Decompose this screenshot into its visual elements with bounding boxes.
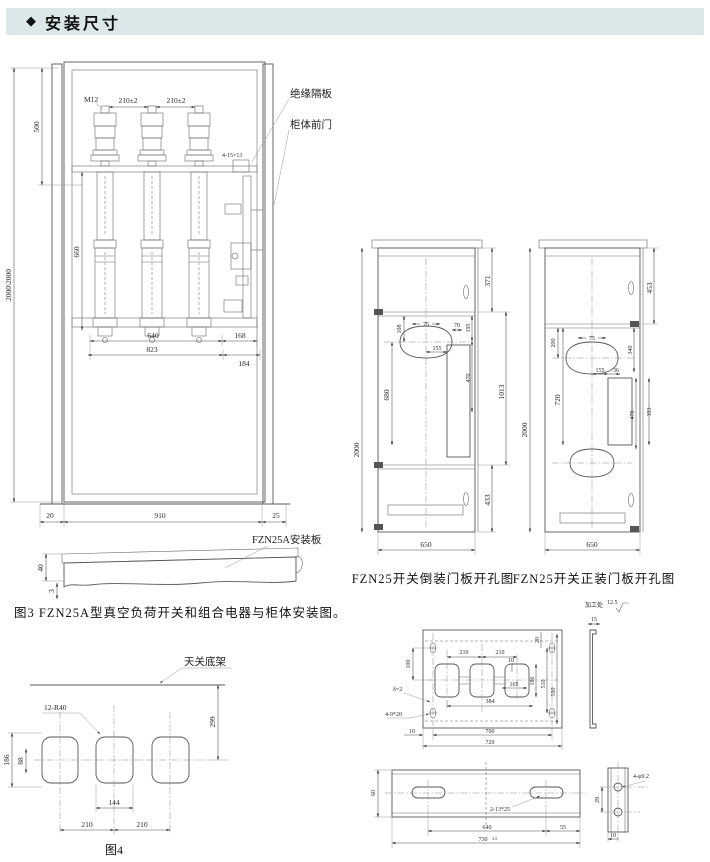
pi-dim-108: 108	[397, 325, 403, 334]
hole-plate-drawing: 100 210 210 10 165 186 384 510 590 20 δ=…	[385, 600, 629, 750]
pi-dim-2000: 2000	[352, 442, 361, 457]
panel-inverted-caption: FZN25开关倒装门板开孔图	[352, 571, 515, 586]
dim-168: 168	[234, 331, 246, 340]
pn-dim-155: 155	[596, 368, 605, 374]
pn-dim-36: 36	[613, 368, 619, 374]
pi-dim-470: 470	[466, 374, 472, 383]
bar-dim-55: 55	[560, 825, 566, 831]
panel-normal-caption: FZN25开关正装门板开孔图	[513, 571, 676, 586]
bar-dim-730-tol: ±1	[492, 837, 498, 842]
hp-dim-590: 590	[551, 688, 557, 697]
pi-dim-75: 75	[423, 322, 429, 328]
dim-640: 640	[147, 331, 159, 340]
hp-slot-note: 4-9*20	[385, 712, 402, 718]
pi-dim-650: 650	[420, 540, 432, 549]
corner-fasteners	[429, 643, 556, 718]
label-base-frame: 天关底架	[184, 655, 226, 668]
hp-dim-165: 165	[510, 682, 519, 688]
bar-dim-10: 10	[610, 833, 616, 839]
panel-inverted-drawing: 2000 371 1013 433 75 108 155 70 195 680	[352, 240, 515, 586]
surface-finish-icon	[616, 603, 629, 612]
dim-823: 823	[146, 345, 158, 354]
bar-dim-730: 730	[479, 837, 488, 843]
finish-value: 12.5	[607, 600, 618, 606]
panel-normal-drawing: 2000 453 75 200 340 155 36 720 470 393	[513, 240, 676, 586]
pn-dim-75: 75	[589, 336, 595, 342]
mounting-plate-view: 40 3 FZN25A安装板	[36, 533, 322, 599]
hp-dim-10b: 10	[409, 729, 415, 735]
bar-dim-29: 29	[595, 797, 601, 803]
hp-thickness: δ=2	[393, 687, 402, 693]
drawing-sheet: 2000\2000 500 M12 210±2 210±2 660 4-15×1…	[0, 0, 710, 862]
base-frame-drawing: 天关底架 12-R40 299 186 88 144	[2, 655, 232, 857]
dim-m12: M12	[84, 95, 98, 104]
pi-dim-371: 371	[483, 275, 492, 287]
dim-660: 660	[72, 246, 81, 258]
dim-plate-40: 40	[36, 564, 45, 572]
bf-dim-144: 144	[108, 798, 120, 807]
fig4-caption: 图4	[105, 843, 123, 857]
hole-plate-side-view: 15	[588, 617, 600, 728]
dim-slot-note: 4-15×13	[222, 153, 242, 159]
bf-dim-299: 299	[208, 716, 217, 728]
bar-hole-note: 4-φ9.2	[633, 774, 649, 780]
dim-plate-3: 3	[47, 589, 56, 593]
pn-dim-340: 340	[628, 346, 634, 355]
pn-dim-2000: 2000	[520, 422, 529, 437]
label-cabinet-front-door: 柜体前门	[290, 118, 332, 131]
label-insulation-board: 绝缘隔板	[290, 87, 332, 100]
bf-dim-88: 88	[16, 757, 25, 765]
document-page: ◆ 安装尺寸	[0, 0, 710, 862]
hp-dim-100: 100	[406, 660, 412, 669]
hp-dim-10: 10	[508, 658, 514, 664]
hp-dim-20: 20	[535, 637, 541, 643]
bar-dim-60: 60	[371, 790, 377, 796]
hp-dim-186: 186	[530, 677, 536, 686]
label-mount-plate: FZN25A安装板	[252, 533, 322, 546]
label-12-r40: 12-R40	[44, 703, 67, 712]
pn-dim-470: 470	[630, 411, 636, 420]
bar-dim-640: 640	[483, 825, 492, 831]
pi-dim-70: 70	[454, 323, 460, 329]
pi-dim-155: 155	[433, 346, 442, 352]
pi-dim-1013: 1013	[497, 384, 506, 399]
pn-dim-650: 650	[586, 540, 598, 549]
fig3-caption: 图3 FZN25A型真空负荷开关和组合电器与柜体安装图。	[14, 605, 347, 620]
dim-pitch-left: 210±2	[118, 96, 137, 105]
pn-dim-453: 453	[645, 282, 654, 294]
hp-dim-210b: 210	[496, 650, 505, 656]
pi-dim-433: 433	[483, 494, 492, 506]
hp-dim-384: 384	[486, 699, 495, 705]
bf-dim-186: 186	[2, 754, 11, 766]
dim-pitch-right: 210±2	[166, 96, 185, 105]
dim-500: 500	[32, 121, 41, 133]
hp-dim-700: 700	[486, 729, 495, 735]
pn-dim-720: 720	[553, 394, 562, 406]
dim-184: 184	[238, 359, 250, 368]
dim-total-height: 2000\2000	[4, 269, 13, 301]
dim-910: 910	[154, 511, 166, 520]
bf-dim-210b: 210	[136, 820, 148, 829]
pi-dim-680: 680	[382, 389, 391, 401]
dim-20: 20	[46, 511, 54, 520]
hp-dim-210a: 210	[460, 650, 469, 656]
cabinet-front-view: 2000\2000 500 M12 210±2 210±2 660 4-15×1…	[4, 62, 332, 527]
hp-dim-510: 510	[541, 680, 547, 689]
pn-dim-200: 200	[551, 339, 557, 348]
bf-dim-210a: 210	[81, 820, 93, 829]
hp-dim-15: 15	[591, 617, 597, 623]
pn-dim-393: 393	[647, 408, 653, 417]
pi-dim-195: 195	[466, 324, 472, 333]
dim-25: 25	[272, 511, 280, 520]
bar-drawing: 60 2-13*25 640 55 730 ±1	[371, 762, 650, 848]
bar-slot-note: 2-13*25	[490, 807, 510, 813]
hp-dim-720: 720	[486, 740, 495, 746]
finish-label: 加工处	[585, 601, 603, 609]
bar-end-view: 4-φ9.2 29 10	[595, 762, 650, 842]
